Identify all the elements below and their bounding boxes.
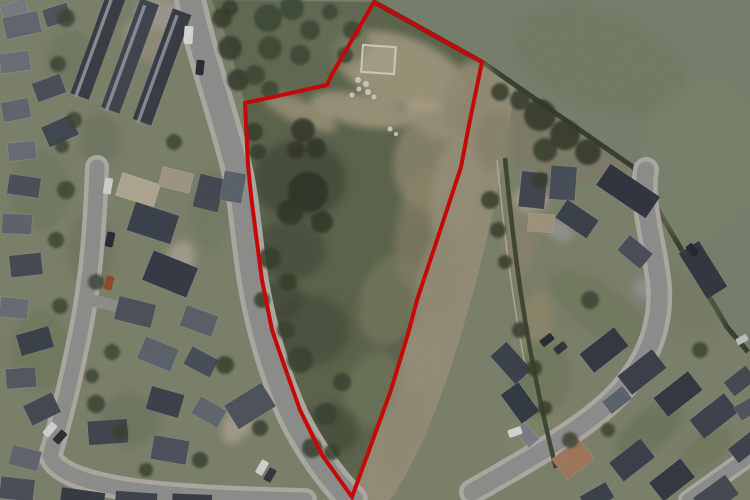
aerial-photo [0, 0, 750, 500]
aerial-photo-frame [0, 0, 750, 500]
photo-grain-overlay [0, 0, 750, 500]
